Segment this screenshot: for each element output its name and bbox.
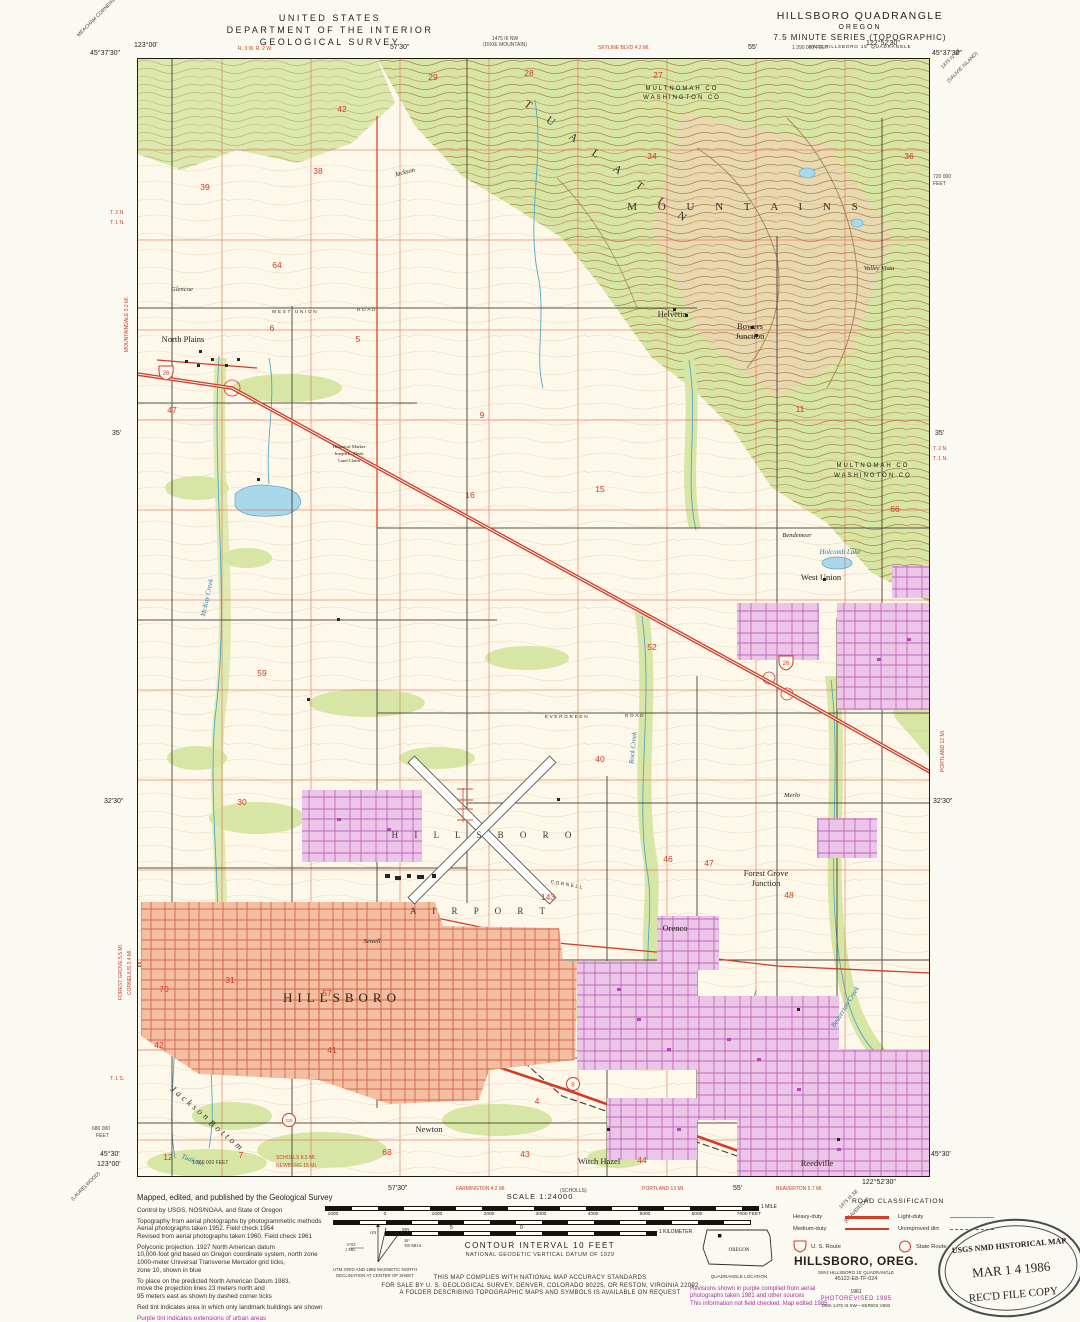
feet-tick-label: 1000	[328, 1212, 339, 1217]
section-number: 38	[313, 166, 323, 176]
quad-state: OREGON	[700, 24, 1020, 31]
feet-tick-label: 6000	[692, 1212, 703, 1217]
section-number: 40	[595, 754, 605, 764]
section-number: 9	[480, 410, 485, 420]
margin-label: R. 3 W. R. 2 W.	[238, 46, 272, 52]
margin-label: 35'	[935, 430, 944, 437]
photorevised-note: PHOTOREVISED 1985	[756, 1296, 956, 1302]
margin-label: 45°30'	[931, 1151, 951, 1158]
margin-label: 123°00'	[134, 42, 158, 49]
vertical-datum-note: NATIONAL GEODETIC VERTICAL DATUM OF 1929	[390, 1252, 690, 1258]
section-number: 7	[239, 1150, 244, 1160]
margin-label: BEAVERTON 5.7 MI.	[776, 1186, 823, 1192]
margin-label: 122°52'30"	[866, 40, 900, 47]
margin-label: 680 000	[92, 1126, 110, 1132]
section-number: 64	[272, 260, 282, 270]
us-route-26-shield: 26	[159, 366, 173, 380]
section-number: 34	[647, 151, 657, 161]
section-number: 57	[322, 988, 332, 998]
margin-label: 57'30"	[388, 1185, 407, 1192]
margin-label: PORTLAND 13 MI.	[642, 1186, 684, 1192]
quad-series: 7.5 MINUTE SERIES (TOPOGRAPHIC)	[700, 33, 1020, 42]
agency-line-1: UNITED STATES	[160, 12, 500, 24]
section-number: 42	[337, 104, 347, 114]
us-route-shield-icon	[793, 1240, 807, 1253]
margin-label: T. 2 N.	[110, 210, 124, 216]
margin-label: T. 2 N.	[933, 446, 947, 452]
state-route-circle-icon	[898, 1240, 912, 1253]
feet-tick-label: 2000	[484, 1212, 495, 1217]
section-number: 4	[535, 1096, 540, 1106]
stamp-line-1: USGS NMD HISTORICAL MAP	[951, 1236, 1066, 1255]
margin-label: 123°00'	[97, 1161, 121, 1168]
section-number: 48	[784, 890, 794, 900]
section-number: 68	[382, 1147, 392, 1157]
margin-label: 45°30'	[100, 1151, 120, 1158]
us-route-26-shield-east: 26	[779, 656, 793, 670]
state-name-label: OREGON	[729, 1248, 750, 1253]
section-number: 47	[167, 405, 177, 415]
margin-label: SCHOLLS 8.5 MI.	[276, 1155, 316, 1161]
svg-text:26: 26	[783, 661, 790, 667]
contour-interval-note: CONTOUR INTERVAL 10 FEET	[390, 1241, 690, 1250]
section-number: 41	[327, 1045, 337, 1055]
dma-series-note: DMA 1475 III SW—SERIES V892	[756, 1303, 956, 1308]
agency-line-3: GEOLOGICAL SURVEY	[160, 36, 500, 48]
section-number: 39	[200, 182, 210, 192]
svg-text:26: 26	[163, 371, 170, 377]
accuracy-line: FOR SALE BY U. S. GEOLOGICAL SURVEY, DEN…	[330, 1283, 750, 1291]
margin-label: (LAURELWOOD)	[70, 1171, 101, 1202]
section-number: 44	[637, 1155, 647, 1165]
margin-label: 1 390 000 FEET	[792, 45, 828, 51]
us-route-legend: U. S. Route	[793, 1240, 898, 1253]
credit-line: Purple tint indicates extensions of urba…	[137, 1315, 437, 1322]
feet-tick-label: 5000	[640, 1212, 651, 1217]
feet-scale-bar	[333, 1220, 751, 1225]
margin-label: 35'	[112, 430, 121, 437]
feet-tick-label: 3000	[536, 1212, 547, 1217]
margin-label: FOREST GROVE 5.5 MI.	[118, 944, 124, 1000]
road-class-sample-line	[845, 1228, 889, 1230]
margin-label: 55'	[748, 44, 757, 51]
margin-label: T. 1 N.	[933, 456, 947, 462]
quad-title: HILLSBORO QUADRANGLE	[700, 10, 1020, 22]
section-number: 59	[257, 668, 267, 678]
margin-label: (DIXIE MOUNTAIN)	[483, 42, 527, 48]
section-number: 12	[163, 1152, 173, 1162]
margin-label: FEET	[933, 181, 946, 187]
km-scale-bar	[385, 1231, 657, 1236]
stamp-line-3: REC'D FILE COPY	[968, 1285, 1058, 1305]
section-number: 27	[653, 70, 663, 80]
state-route-8-marker: 8	[567, 1078, 580, 1091]
sheet-name: HILLSBORO, OREG.	[756, 1254, 956, 1268]
margin-label: CORNELIUS 3.4 MI.	[127, 949, 133, 995]
sheet-code: 45122-E8-TF-024	[756, 1276, 956, 1282]
margin-label: FEET	[96, 1133, 109, 1139]
topo-map-sheet: { "header": { "agency1": "UNITED STATES"…	[0, 0, 1080, 1322]
section-number: 15	[595, 484, 605, 494]
section-number: 143	[541, 892, 555, 902]
km-zero-label: 0	[520, 1225, 523, 1231]
section-number: 28	[524, 68, 534, 78]
feet-tick-label: 1000	[432, 1212, 443, 1217]
feet-tick-label: 7000 FEET	[737, 1212, 761, 1217]
sheet-year: 1961	[756, 1289, 956, 1295]
section-number: 70	[159, 984, 169, 994]
km-half-label: 5	[450, 1225, 453, 1231]
received-stamp: USGS NMD HISTORICAL MAP MAR 1 4 1986 REC…	[932, 1210, 1080, 1322]
margin-label: 32'30"	[104, 798, 123, 805]
section-number: 6	[270, 323, 275, 333]
section-number: 46	[663, 854, 673, 864]
road-class-item: Heavy-duty	[793, 1214, 898, 1220]
margin-label: 45°37'30"	[90, 50, 120, 57]
margin-label: T. 1 N.	[110, 220, 124, 226]
section-number: 16	[465, 490, 475, 500]
credit-line: Mapped, edited, and published by the Geo…	[137, 1193, 437, 1203]
margin-label: PORTLAND 12 MI.	[940, 730, 946, 772]
section-number: 5	[356, 334, 361, 344]
margin-label: 720 000	[933, 174, 951, 180]
margin-label: NEWBERG 15 MI.	[276, 1163, 317, 1169]
section-number: 52	[647, 642, 657, 652]
section-number: 11	[796, 404, 805, 414]
margin-label: MEACHAM CORNERS	[76, 0, 117, 38]
state-route-219-marker: 219	[283, 1114, 296, 1127]
sheet-title-block: HILLSBORO, OREG. SW/4 HILLSBORO 15' QUAD…	[756, 1254, 956, 1308]
section-number: 29	[428, 72, 438, 82]
section-number: 30	[237, 797, 247, 807]
margin-label: T. 1 S.	[110, 1076, 124, 1082]
section-number: 42	[154, 1040, 164, 1050]
agency-line-2: DEPARTMENT OF THE INTERIOR	[160, 24, 500, 36]
margin-label: 55'	[733, 1185, 742, 1192]
section-number: 31	[225, 975, 235, 985]
margin-label: 122°52'30"	[862, 1179, 896, 1186]
accuracy-line: A FOLDER DESCRIBING TOPOGRAPHIC MAPS AND…	[330, 1290, 750, 1298]
margin-label: 32'30"	[933, 798, 952, 805]
section-number: 47	[704, 858, 714, 868]
section-number: 66	[890, 504, 900, 514]
feet-tick-label: 0	[384, 1212, 387, 1217]
stamp-line-2: MAR 1 4 1986	[971, 1259, 1051, 1281]
scale-title: SCALE 1:24000	[440, 1192, 640, 1201]
section-number: 36	[904, 151, 914, 161]
credit-line: Red tint indicates area in which only la…	[137, 1304, 437, 1312]
road-classification-title: ROAD CLASSIFICATION	[793, 1198, 1003, 1205]
km-label: 1 KILOMETER	[659, 1229, 692, 1235]
sheet-subtitle: SW/4 HILLSBORO 15' QUADRANGLE	[756, 1270, 956, 1275]
feet-tick-labels: 100001000200030004000500060007000 FEET	[325, 1203, 785, 1219]
road-class-sample-line	[845, 1216, 889, 1219]
margin-label: 57'30"	[390, 44, 409, 51]
feet-tick-label: 4000	[588, 1212, 599, 1217]
margin-label: MOUNTAINDALE 5.2 MI.	[124, 296, 130, 352]
svg-text:219: 219	[286, 1118, 294, 1123]
margin-label: 1 360 000 FEET	[192, 1160, 228, 1166]
quadrangle-location-dot	[718, 1234, 721, 1237]
usgs-agency-header: UNITED STATES DEPARTMENT OF THE INTERIOR…	[160, 12, 500, 48]
section-number: 43	[520, 1149, 530, 1159]
road-class-item: Medium-duty	[793, 1226, 898, 1232]
map-canvas: 26 26 8 219 North PlainsGlencoeHelvetiaB…	[137, 58, 930, 1177]
margin-label: SKYLINE BLVD 4.2 MI.	[598, 45, 650, 51]
